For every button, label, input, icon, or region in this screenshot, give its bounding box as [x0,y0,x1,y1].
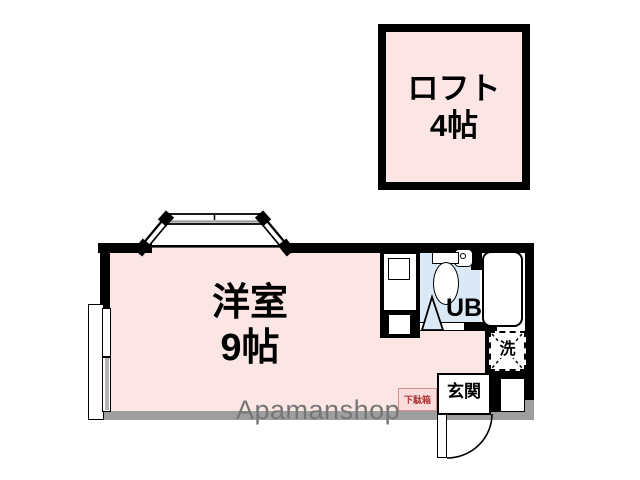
bay-window-left-glass [146,221,166,245]
main-room-size: 9帖 [175,326,325,371]
shoe-box: 下駄箱 [398,388,437,411]
bay-window-left-top-cap [162,214,170,223]
ub-door-strip [419,322,465,331]
wall-entry-left [491,373,500,412]
kitchen-sink-icon [388,258,410,280]
left-window-lower-sash [105,358,109,410]
entrance-door-leaf [437,414,447,458]
sink-faucet-icon [460,253,466,259]
bay-window-right-top-cap [259,214,267,223]
unit-bath-label: UB [444,295,484,323]
loft-label: ロフト [408,70,501,107]
bay-window-right-frame [261,218,285,247]
floorplan-canvas: ロフト 4帖 下駄箱 洋 [0,0,640,480]
bathtub-icon [482,251,523,327]
entrance-label: 玄関 [437,383,491,402]
entry-closet [500,378,525,412]
watermark: Apamanshop [236,395,400,426]
entrance-door-arc [447,414,492,458]
loft-size: 4帖 [430,107,478,144]
loft-room: ロフト 4帖 [378,24,530,190]
kitchen-stove-icon [388,314,411,335]
main-room-label: 洋室 9帖 [175,281,325,371]
bay-window-top [166,214,263,224]
shoe-box-label: 下駄箱 [404,393,431,406]
washer-label: 洗 [489,341,526,359]
bay-window-right-glass [263,221,283,245]
main-room-name: 洋室 [175,281,325,326]
wall-left [100,243,110,310]
